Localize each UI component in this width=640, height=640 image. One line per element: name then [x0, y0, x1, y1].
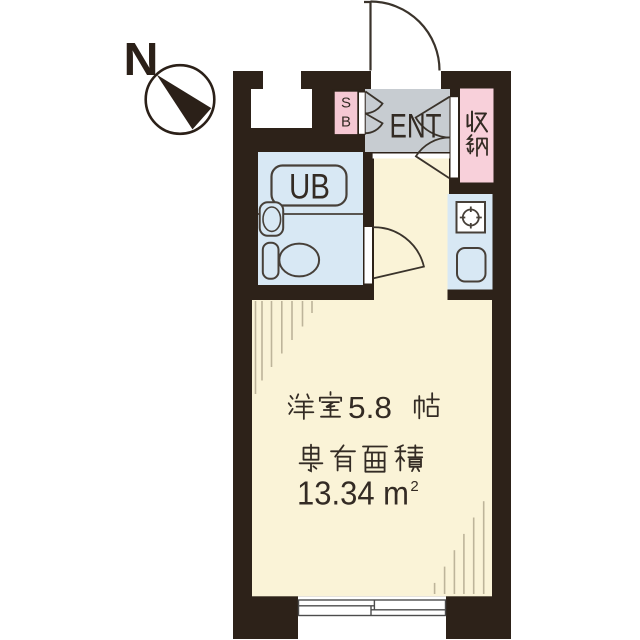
svg-text:UB: UB [289, 168, 330, 207]
svg-text:2: 2 [410, 478, 418, 495]
svg-text:13.34 m: 13.34 m [297, 475, 409, 512]
svg-text:B: B [341, 114, 351, 131]
svg-text:S: S [341, 95, 351, 112]
svg-text:ENT: ENT [390, 108, 442, 146]
svg-text:5.8: 5.8 [348, 390, 392, 425]
